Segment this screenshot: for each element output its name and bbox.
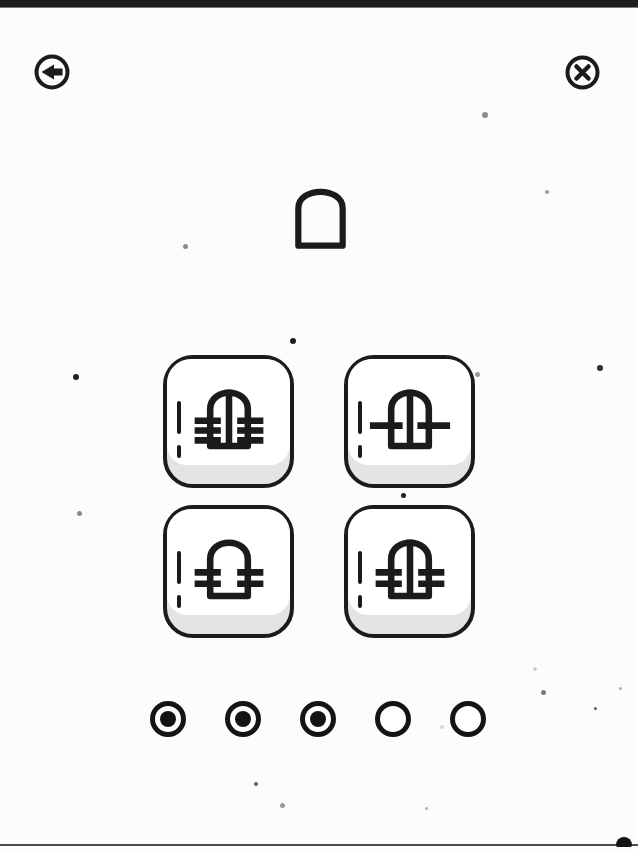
- keycap-highlight-dash: [358, 445, 362, 458]
- keycap-highlight-dash: [358, 595, 362, 608]
- keycap-highlight-dash: [177, 401, 181, 434]
- ink-speck: [440, 725, 444, 729]
- level-progress-dots: [150, 701, 486, 737]
- ink-speck: [77, 511, 82, 516]
- ink-speck: [541, 690, 546, 695]
- ink-speck: [475, 372, 480, 377]
- close-button[interactable]: [564, 54, 601, 91]
- keycap-highlight-dash: [177, 595, 181, 608]
- arch-glyph-icon: [184, 524, 274, 606]
- progress-dot-core: [235, 711, 251, 727]
- ink-speck: [183, 244, 188, 249]
- arrow-left-icon: [33, 53, 71, 91]
- arch-glyph-icon: [184, 374, 274, 456]
- answer-tile-2[interactable]: [344, 355, 475, 488]
- arch-glyph-icon: [365, 524, 455, 606]
- ink-speck: [597, 365, 603, 371]
- progress-dot-3-filled: [300, 701, 336, 737]
- answer-grid: [163, 355, 475, 638]
- progress-dot-core: [160, 711, 176, 727]
- answer-tile-4[interactable]: [344, 505, 475, 638]
- arch-outline-icon: [293, 181, 348, 250]
- game-screen: [0, 0, 638, 850]
- ink-speck: [425, 807, 428, 810]
- progress-dot-2-filled: [225, 701, 261, 737]
- ink-speck: [401, 493, 406, 498]
- ink-speck: [545, 190, 549, 194]
- progress-dot-5-empty: [450, 701, 486, 737]
- arch-glyph-icon: [365, 374, 455, 456]
- bottom-notch: [616, 837, 632, 847]
- ink-speck: [254, 782, 258, 786]
- ink-speck: [594, 707, 597, 710]
- answer-tile-1[interactable]: [163, 355, 294, 488]
- ink-speck: [619, 687, 622, 690]
- progress-dot-1-filled: [150, 701, 186, 737]
- ink-speck: [482, 112, 488, 118]
- progress-dot-4-empty: [375, 701, 411, 737]
- ink-speck: [73, 374, 79, 380]
- keycap-highlight-dash: [358, 551, 362, 584]
- ink-speck: [290, 338, 296, 344]
- back-button[interactable]: [33, 53, 71, 91]
- target-shape: [293, 181, 348, 250]
- bottom-letterbox-line: [0, 844, 638, 846]
- keycap-highlight-dash: [177, 445, 181, 458]
- progress-dot-core: [310, 711, 326, 727]
- close-x-icon: [564, 54, 601, 91]
- ink-speck: [280, 803, 285, 808]
- answer-tile-3[interactable]: [163, 505, 294, 638]
- keycap-highlight-dash: [358, 401, 362, 434]
- ink-speck: [533, 667, 537, 671]
- top-letterbox-bar: [0, 0, 638, 8]
- keycap-highlight-dash: [177, 551, 181, 584]
